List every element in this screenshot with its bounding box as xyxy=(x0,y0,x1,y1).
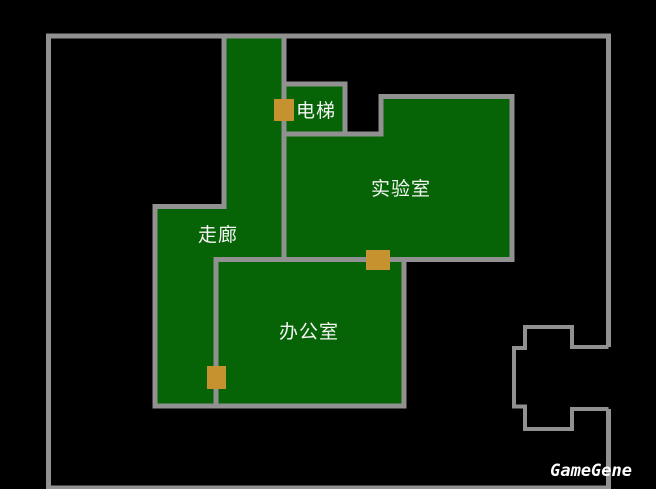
lab-office-door-icon xyxy=(366,250,390,270)
corridor-label: 走廊 xyxy=(198,224,238,246)
corridor-office-door-icon xyxy=(207,366,226,389)
elevator-door-icon xyxy=(274,99,294,121)
watermark-text: GameGene xyxy=(550,461,632,481)
elevator-label: 电梯 xyxy=(296,100,336,122)
office-label: 办公室 xyxy=(279,321,339,343)
laboratory-label: 实验室 xyxy=(371,178,431,200)
game-floor-map: 电梯 实验室 走廊 办公室 GameGene xyxy=(0,0,656,489)
floor-map-canvas: 电梯 实验室 走廊 办公室 GameGene xyxy=(0,0,656,489)
